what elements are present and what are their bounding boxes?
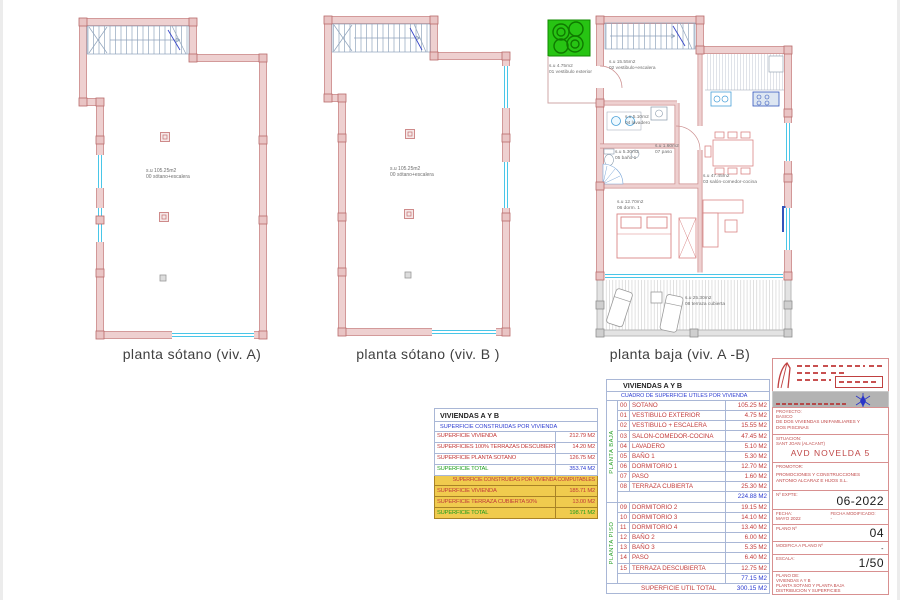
room-label-dorm1: s.u 12.70m2 06 dorm. 1 — [617, 200, 643, 211]
table-cell: BAÑO 1 — [630, 451, 726, 461]
room-name: 00 sótano+escalera — [390, 172, 434, 178]
table-cell: 25.30 M2 — [726, 482, 770, 492]
table-cell: 5.35 M2 — [726, 543, 770, 553]
room-area: s.u 12.70m2 — [617, 200, 643, 206]
room-name: 05 baño 1 — [615, 156, 639, 162]
room-area: s.u 1.60m2 — [655, 144, 679, 150]
room-name: 04 lavadero — [625, 121, 650, 127]
table-cell: 12.70 M2 — [726, 461, 770, 471]
room-name: 00 sótano+escalera — [146, 174, 190, 180]
table-cell — [618, 492, 726, 502]
table-cell: 1.60 M2 — [726, 472, 770, 482]
room-area: s.u 5.30m2 — [615, 150, 639, 156]
table-cell: LAVADERO — [630, 441, 726, 451]
built-areas-title: VIVIENDAS A Y B — [434, 408, 598, 422]
room-label-lavadero: s.u 5.10m2 04 lavadero — [625, 115, 650, 126]
signature-text-line — [847, 365, 865, 367]
table-cell: TERRAZA DESCUBIERTA — [630, 563, 726, 573]
wardrobe — [679, 218, 696, 258]
table-cell: 77.15 M2 — [726, 573, 770, 583]
room-label-paso: s.u 1.60m2 07 paso — [655, 144, 679, 155]
table-row: SUPERFICIE TOTAL198.71 M2 — [435, 508, 598, 519]
plan-title-sotano-a: planta sótano (viv. A) — [82, 346, 302, 362]
location-section: SITUACION: SANT JOAN (ALACANT) AVD NOVEL… — [772, 434, 889, 463]
table-cell: 126.75 M2 — [556, 453, 598, 464]
vegetation — [548, 20, 590, 56]
table-cell: 5.30 M2 — [726, 451, 770, 461]
collegiate-box — [835, 376, 883, 388]
table-row: 05BAÑO 15.30 M2 — [618, 451, 770, 461]
table-cell: 04 — [618, 441, 630, 451]
window — [432, 66, 510, 336]
college-stamp-bar — [772, 391, 889, 408]
developer-label: PROMOTOR: — [776, 464, 885, 469]
built-areas-table: VIVIENDAS A Y B SUPERFICIE CONSTRUIDAS P… — [434, 408, 598, 519]
table-cell: DORMITORIO 2 — [630, 502, 726, 512]
table-row: 11DORMITORIO 413.40 M2 — [618, 522, 770, 532]
room-name: 08 terraza cubierta — [685, 302, 725, 308]
group-label: PLANTA BAJA — [609, 430, 615, 473]
table-cell: 12.75 M2 — [726, 563, 770, 573]
kitchen — [705, 54, 784, 110]
table-cell: SALON-COMEDOR-COCINA — [630, 431, 726, 441]
table-row: SUPERFICIE VIVIENDA212.79 M2 — [435, 432, 598, 443]
drawing-sheet: s.u 105.25m2 00 sótano+escalera planta s… — [0, 0, 900, 600]
stairs — [87, 26, 189, 54]
table-cell: 13.00 M2 — [556, 497, 598, 508]
architect-logo-area — [772, 358, 889, 392]
table-row: 02VESTIBULO + ESCALERA15.55 M2 — [618, 421, 770, 431]
table-cell — [618, 573, 726, 583]
floor-group-strip: PLANTA BAJA PLANTA PISO — [606, 400, 617, 584]
table-row: 06DORMITORIO 112.70 M2 — [618, 461, 770, 471]
table-cell: SUPERFICIE TOTAL — [435, 464, 556, 475]
built-areas-grid: SUPERFICIE VIVIENDA212.79 M2SUPERFICIES … — [434, 431, 598, 519]
table-cell: 10 — [618, 512, 630, 522]
table-cell: 01 — [618, 411, 630, 421]
plan-title-sotano-b: planta sótano (viv. B ) — [318, 346, 538, 362]
room-name: 06 dorm. 1 — [617, 206, 643, 212]
expedient-value: 06-2022 — [836, 494, 884, 508]
table-cell: VESTIBULO + ESCALERA — [630, 421, 726, 431]
table-cell: 13.40 M2 — [726, 522, 770, 532]
group-planta-baja: PLANTA BAJA — [606, 400, 617, 503]
room-area: s.u 5.10m2 — [625, 115, 650, 121]
doors — [596, 66, 700, 150]
table-cell: 353.74 M2 — [556, 464, 598, 475]
expedient-section: Nº EXPTE: 06-2022 — [772, 490, 889, 510]
table-cell: 6.00 M2 — [726, 533, 770, 543]
table-cell: SUPERFICIE PLANTA SOTANO — [435, 453, 556, 464]
table-row: 14PASO6.40 M2 — [618, 553, 770, 563]
table-cell: 15.55 M2 — [726, 421, 770, 431]
table-cell: 14.20 M2 — [556, 442, 598, 453]
table-cell: SUPERFICIES 100% TERRAZAS DESCUBIERTAS — [435, 442, 556, 453]
table-cell: SOTANO — [630, 401, 726, 411]
table-row: SUPERFICIE VIVIENDA185.71 M2 — [435, 486, 598, 497]
stairs — [605, 23, 695, 49]
location-small: SANT JOAN (ALACANT) — [776, 441, 885, 446]
table-row: 07PASO1.60 M2 — [618, 472, 770, 482]
table-cell: 14 — [618, 553, 630, 563]
table-cell: 5.10 M2 — [726, 441, 770, 451]
table-cell: 185.71 M2 — [556, 486, 598, 497]
table-cell: TERRAZA CUBIERTA — [630, 482, 726, 492]
plan-c-drawing — [545, 8, 795, 348]
table-row: 01VESTIBULO EXTERIOR4.75 M2 — [618, 411, 770, 421]
table-cell: BAÑO 3 — [630, 543, 726, 553]
table-cell: DORMITORIO 4 — [630, 522, 726, 532]
table-cell: 198.71 M2 — [556, 508, 598, 519]
signature-text-line — [869, 365, 885, 367]
room-name: 02 vestibulo+escalera — [609, 66, 656, 72]
scale-section: ESCALA: 1/50 — [772, 554, 889, 572]
room-name: 03 salón-comedor-cocina — [703, 180, 757, 186]
table-cell: 11 — [618, 522, 630, 532]
bed — [617, 214, 671, 258]
interior-columns — [160, 133, 170, 282]
modifies-value: - — [881, 546, 884, 553]
plan-title-baja: planta baja (viv. A -B) — [570, 346, 790, 362]
useful-areas-body: PLANTA BAJA PLANTA PISO 00SOTANO105.25 M… — [606, 400, 770, 584]
table-row: 03SALON-COMEDOR-COCINA47.45 M2 — [618, 431, 770, 441]
room-label-terraza: s.u 25.30m2 08 terraza cubierta — [685, 296, 725, 307]
table-row: 04LAVADERO5.10 M2 — [618, 441, 770, 451]
table-row: 08TERRAZA CUBIERTA25.30 M2 — [618, 482, 770, 492]
table-cell: 4.75 M2 — [726, 411, 770, 421]
scale-value: 1/50 — [859, 556, 884, 570]
room-label-salon: s.u 47.45m2 03 salón-comedor-cocina — [703, 174, 757, 185]
architect-logo-icon — [775, 360, 795, 392]
table-cell: 19.15 M2 — [726, 502, 770, 512]
table-cell: 09 — [618, 502, 630, 512]
sofa — [703, 200, 743, 247]
table-row: 15TERRAZA DESCUBIERTA12.75 M2 — [618, 563, 770, 573]
signature-text-line — [797, 365, 819, 367]
sliding-door — [605, 273, 783, 280]
table-cell: 03 — [618, 431, 630, 441]
table-row: 00SOTANO105.25 M2 — [618, 401, 770, 411]
total-value: 300.15 M2 — [723, 584, 769, 593]
date-section: FECHA: MAYO 2022 FECHA MODIFICADO: - — [772, 509, 889, 525]
total-label: SUPERFICIE UTIL TOTAL — [607, 584, 723, 593]
modifies-section: MODIFICA A PLANO Nº - — [772, 541, 889, 555]
sheet-content-line: DISTRIBUCION Y SUPERFICIES — [776, 588, 885, 593]
date-value: MAYO 2022 — [776, 516, 831, 522]
interior-columns — [405, 130, 415, 279]
table-row: SUPERFICIE PLANTA SOTANO126.75 M2 — [435, 453, 598, 464]
table-cell: 47.45 M2 — [726, 431, 770, 441]
table-cell: 212.79 M2 — [556, 432, 598, 443]
developer-section: PROMOTOR: PROMOCIONES Y CONSTRUCCIONES A… — [772, 462, 889, 491]
table-row: SUPERFICIE TOTAL353.74 M2 — [435, 464, 598, 475]
location-address: AVD NOVELDA 5 — [776, 448, 885, 458]
window — [96, 155, 254, 339]
developer-name: ANTONIO ALCARAZ E HIJOS S.L. — [776, 478, 885, 484]
project-section: PROYECTO: BASICO DE DOS VIVIENDAS UNIFAM… — [772, 407, 889, 435]
table-cell: 08 — [618, 482, 630, 492]
table-cell: 14.10 M2 — [726, 512, 770, 522]
table-cell: SUPERFICIE TERRAZA CUBIERTA 50% — [435, 497, 556, 508]
table-cell: 00 — [618, 401, 630, 411]
table-row: 77.15 M2 — [618, 573, 770, 583]
table-row: 09DORMITORIO 219.15 M2 — [618, 502, 770, 512]
useful-areas-total-row: SUPERFICIE UTIL TOTAL 300.15 M2 — [606, 583, 770, 594]
stairs — [332, 24, 430, 52]
room-label-bano1: s.u 5.30m2 05 baño 1 — [615, 150, 639, 161]
project-desc: DOS PISCINAS — [776, 425, 885, 431]
room-label-vestibulo-escalera: s.u 15.55m2 02 vestibulo+escalera — [609, 60, 656, 71]
sheet-content-section: PLANO DE: VIVIENDAS A Y B PLANTA SOTANO … — [772, 571, 889, 595]
table-row: SUPERFICIE CONSTRUIDAS POR VIVIENDA COMP… — [435, 475, 598, 486]
stamp-text-line — [776, 403, 846, 405]
table-row: 224.88 M2 — [618, 492, 770, 502]
sheet-number-section: PLANO Nº 04 — [772, 524, 889, 542]
table-cell: SUPERFICIE VIVIENDA — [435, 486, 556, 497]
signature-text-line — [797, 372, 827, 374]
room-name: 01 vestibulo exterior — [549, 70, 595, 76]
group-label: PLANTA PISO — [609, 522, 615, 565]
table-cell: 06 — [618, 461, 630, 471]
floor-plan-sotano-a: s.u 105.25m2 00 sótano+escalera — [60, 10, 280, 345]
modifies-label: MODIFICA A PLANO Nº — [776, 543, 885, 548]
table-cell: SUPERFICIE CONSTRUIDAS POR VIVIENDA COMP… — [435, 475, 598, 486]
table-cell: 12 — [618, 533, 630, 543]
table-cell: 05 — [618, 451, 630, 461]
table-row: SUPERFICIES 100% TERRAZAS DESCUBIERTAS14… — [435, 442, 598, 453]
useful-areas-table: VIVIENDAS A Y B CUADRO DE SUPERFICIE UTI… — [606, 379, 770, 594]
useful-areas-grid: 00SOTANO105.25 M201VESTIBULO EXTERIOR4.7… — [617, 400, 770, 584]
table-cell: 13 — [618, 543, 630, 553]
table-row: 13BAÑO 35.35 M2 — [618, 543, 770, 553]
table-cell: PASO — [630, 553, 726, 563]
floor-plan-sotano-b: s.u 105.25m2 00 sótano+escalera — [322, 10, 522, 345]
table-cell: 07 — [618, 472, 630, 482]
table-row: 12BAÑO 26.00 M2 — [618, 533, 770, 543]
group-planta-piso: PLANTA PISO — [606, 502, 617, 584]
dining-table — [705, 132, 753, 174]
signature-text-line — [823, 365, 843, 367]
room-label-sotano-a: s.u 105.25m2 00 sótano+escalera — [146, 168, 190, 180]
table-row: 10DORMITORIO 314.10 M2 — [618, 512, 770, 522]
table-cell: 02 — [618, 421, 630, 431]
table-cell: DORMITORIO 1 — [630, 461, 726, 471]
table-row: SUPERFICIE TERRAZA CUBIERTA 50%13.00 M2 — [435, 497, 598, 508]
table-cell: SUPERFICIE VIVIENDA — [435, 432, 556, 443]
sheet-number-value: 04 — [870, 526, 884, 540]
signature-text-line — [831, 372, 845, 374]
signature-text-line — [797, 379, 831, 381]
collegiate-text-line — [839, 381, 879, 383]
table-cell: 6.40 M2 — [726, 553, 770, 563]
table-cell: 224.88 M2 — [726, 492, 770, 502]
table-cell: SUPERFICIE TOTAL — [435, 508, 556, 519]
table-cell: BAÑO 2 — [630, 533, 726, 543]
table-cell: VESTIBULO EXTERIOR — [630, 411, 726, 421]
sheet-number-label: PLANO Nº — [776, 526, 885, 531]
room-label-vestibulo-exterior: s.u 4.75m2 01 vestibulo exterior — [549, 64, 595, 75]
date-modified-value: - — [831, 516, 886, 522]
table-cell: 105.25 M2 — [726, 401, 770, 411]
room-name: 07 paso — [655, 150, 679, 156]
table-cell: DORMITORIO 3 — [630, 512, 726, 522]
room-label-sotano-b: s.u 105.25m2 00 sótano+escalera — [390, 166, 434, 178]
floor-plan-baja: s.u 4.75m2 01 vestibulo exterior s.u 15.… — [545, 8, 795, 348]
title-block: PROYECTO: BASICO DE DOS VIVIENDAS UNIFAM… — [772, 358, 889, 600]
table-cell: PASO — [630, 472, 726, 482]
table-cell: 15 — [618, 563, 630, 573]
